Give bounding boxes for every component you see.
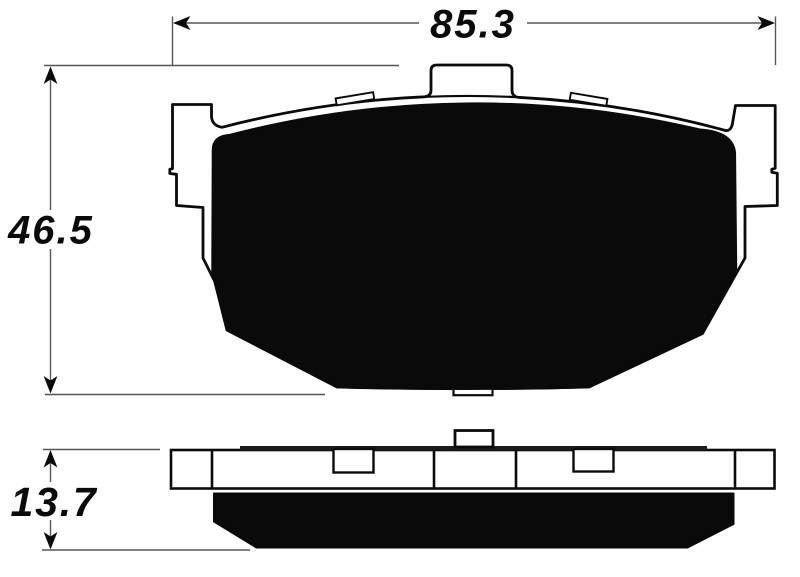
svg-text:85.3: 85.3 [430,3,516,47]
svg-text:46.5: 46.5 [7,209,94,253]
svg-text:13.7: 13.7 [11,479,98,525]
